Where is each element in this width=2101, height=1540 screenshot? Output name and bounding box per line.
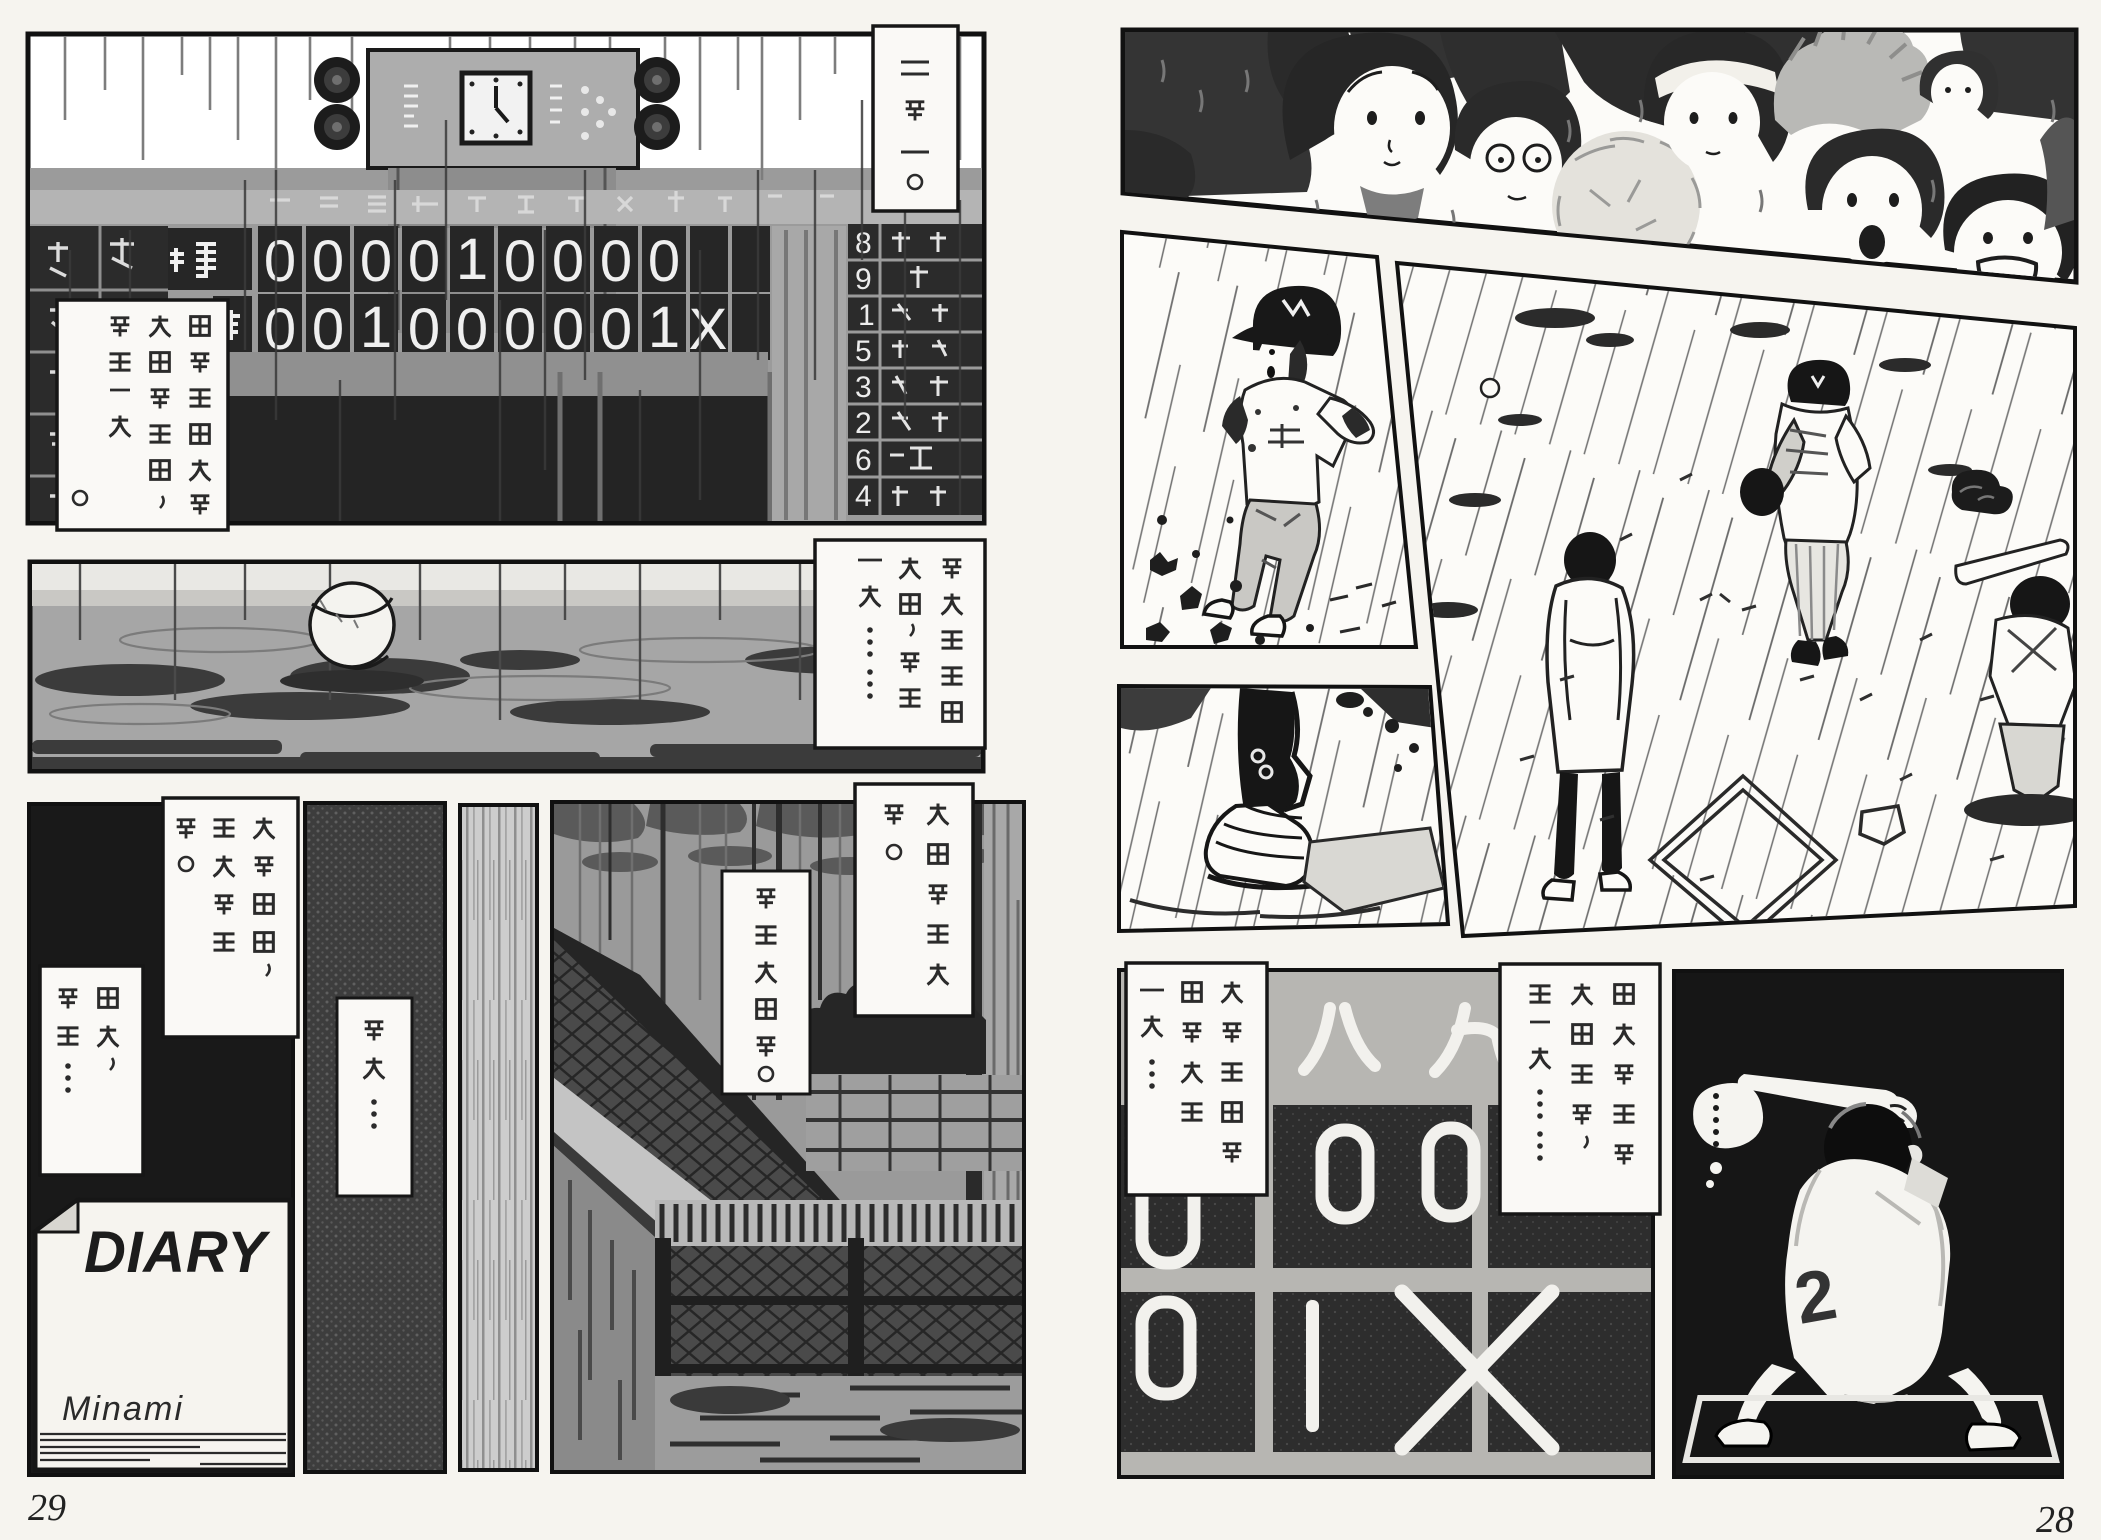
svg-text:5: 5 xyxy=(855,335,872,368)
svg-text:9: 9 xyxy=(855,263,872,296)
svg-text:0: 0 xyxy=(360,229,392,294)
svg-text:0: 0 xyxy=(408,229,440,294)
svg-text:1: 1 xyxy=(360,295,392,360)
svg-text:0: 0 xyxy=(648,229,680,294)
svg-text:Minami: Minami xyxy=(62,1390,183,1428)
svg-text:0: 0 xyxy=(600,229,632,294)
svg-text:0: 0 xyxy=(264,229,296,294)
svg-text:3: 3 xyxy=(855,371,872,404)
svg-text:1: 1 xyxy=(648,295,680,360)
svg-text:0: 0 xyxy=(312,229,344,294)
svg-text:28: 28 xyxy=(2036,1499,2074,1540)
svg-text:1: 1 xyxy=(858,299,875,332)
svg-text:0: 0 xyxy=(504,229,536,294)
svg-text:1: 1 xyxy=(456,227,488,292)
svg-text:DIARY: DIARY xyxy=(84,1220,271,1285)
svg-text:4: 4 xyxy=(855,480,872,513)
svg-text:6: 6 xyxy=(855,444,872,477)
svg-text:0: 0 xyxy=(552,229,584,294)
svg-text:8: 8 xyxy=(855,227,872,260)
svg-text:29: 29 xyxy=(28,1487,66,1529)
svg-text:2: 2 xyxy=(855,407,872,440)
